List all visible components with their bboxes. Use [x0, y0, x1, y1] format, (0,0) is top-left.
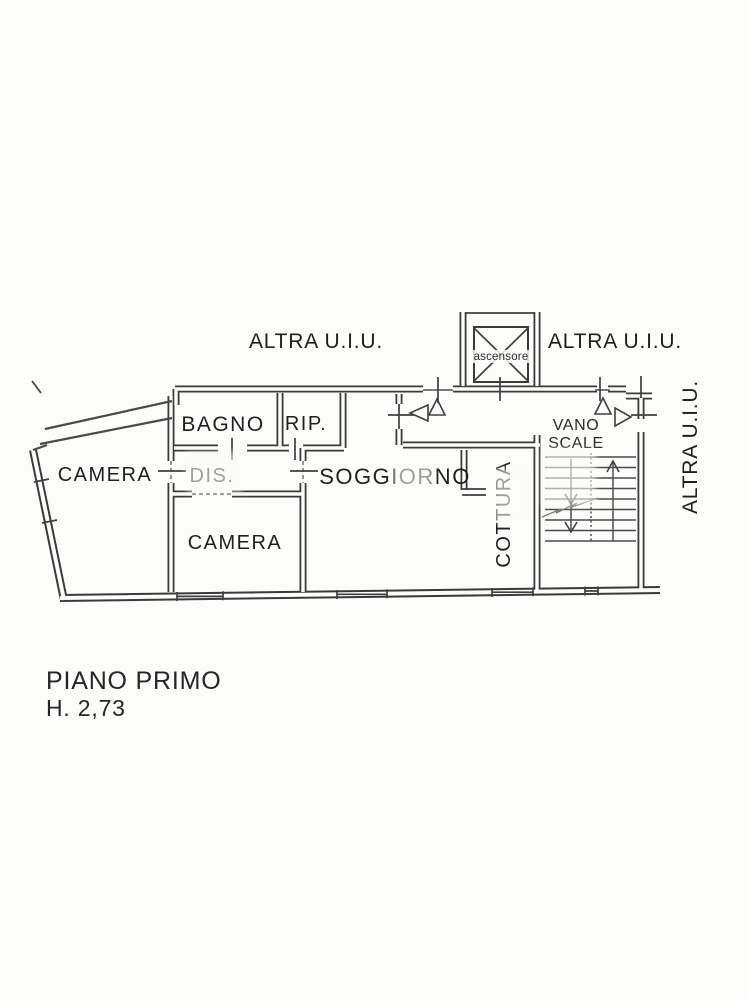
label-altra-uiu-right-vertical: ALTRA U.I.U. — [679, 380, 702, 514]
plan-labels: ALTRA U.I.U. ALTRA U.I.U. ALTRA U.I.U. C… — [58, 330, 702, 568]
door-swing-up-icon — [595, 398, 611, 414]
label-altra-uiu-top-left: ALTRA U.I.U. — [249, 330, 383, 353]
label-bagno: BAGNO — [181, 413, 264, 436]
floor-height: H. 2,73 — [46, 695, 126, 721]
door-swing-up-icon — [429, 399, 445, 415]
door-swing-left-icon — [410, 405, 428, 421]
caption: PIANO PRIMO H. 2,73 — [46, 667, 222, 721]
floor-title: PIANO PRIMO — [46, 667, 222, 695]
label-camera-left: CAMERA — [58, 464, 153, 486]
label-ascensore: ascensore — [474, 351, 529, 363]
label-altra-uiu-top-right: ALTRA U.I.U. — [548, 330, 682, 353]
label-rip: RIP. — [285, 413, 327, 435]
label-vano-scale-line1: VANO — [553, 417, 600, 434]
floor-plan-drawing: ascensore ALTRA U.I.U. ALTRA U.I.U. ALTR… — [0, 0, 750, 1000]
door-swing-right-icon — [615, 408, 631, 426]
elevator: ascensore — [471, 327, 533, 382]
scanned-floor-plan-page: ascensore ALTRA U.I.U. ALTRA U.I.U. ALTR… — [0, 0, 750, 1000]
label-camera-center: CAMERA — [188, 532, 283, 554]
